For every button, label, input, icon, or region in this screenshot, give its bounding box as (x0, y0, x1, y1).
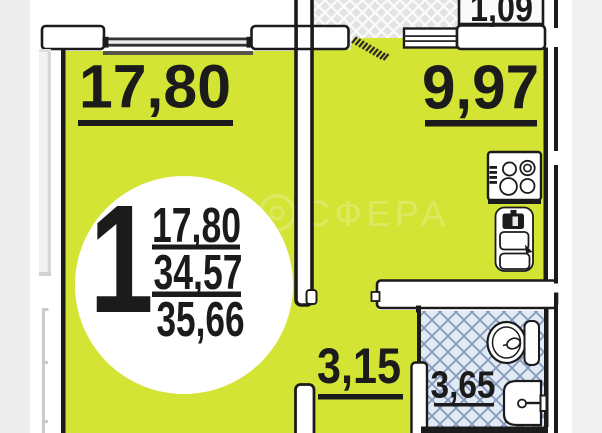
svg-text:1,09: 1,09 (470, 0, 533, 30)
svg-text:1: 1 (90, 173, 154, 345)
svg-text:17,80: 17,80 (79, 53, 231, 121)
svg-text:3,15: 3,15 (317, 338, 401, 394)
svg-text:СФЕРА: СФЕРА (304, 193, 450, 234)
svg-text:3,65: 3,65 (431, 365, 496, 407)
svg-text:9,97: 9,97 (422, 54, 539, 123)
svg-text:35,66: 35,66 (157, 293, 245, 347)
